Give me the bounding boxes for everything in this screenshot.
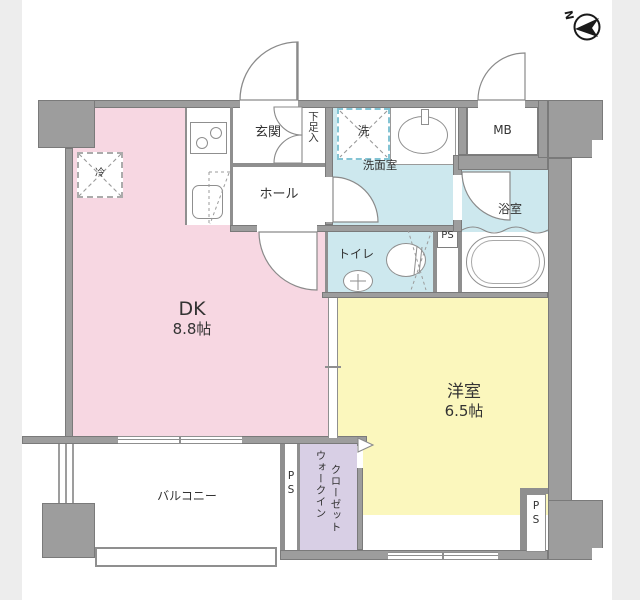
bath-wave-line xyxy=(462,227,548,233)
western-room-size: 6.5帖 xyxy=(404,403,524,420)
fridge-label: 冷 xyxy=(77,168,123,180)
floorplan: N DK 8.8帖 洋室 6.5帖 バルコニー ウォークイン クローゼット 玄関… xyxy=(0,0,640,600)
mb-label: MB xyxy=(467,124,538,138)
toilet-door-dashed xyxy=(408,230,426,290)
washer-label: 洗 xyxy=(337,125,390,139)
mb-door-swing xyxy=(478,53,525,100)
toilet-seam xyxy=(414,246,417,275)
wic-label-line1: ウォークイン xyxy=(314,450,329,548)
shoe-box-label: 下足入 xyxy=(306,111,321,143)
ps-balcony-label: PS xyxy=(285,470,297,498)
hall-label: ホール xyxy=(233,188,325,203)
compass-north-label: N xyxy=(560,7,575,23)
washroom-label: 洗面室 xyxy=(340,159,420,172)
washroom-door-swing xyxy=(333,177,378,222)
wic-label: ウォークイン クローゼット xyxy=(303,450,354,548)
balcony-label: バルコニー xyxy=(117,490,257,504)
entry-door-swing xyxy=(240,42,298,100)
hall-dk-door-swing xyxy=(259,232,317,290)
genkan-label: 玄関 xyxy=(238,126,298,141)
toilet-door-dashed xyxy=(411,230,432,290)
dk-room-label: DK xyxy=(132,299,252,321)
kitchen-dashed-line xyxy=(210,173,229,224)
bath-label: 浴室 xyxy=(482,203,538,217)
wic-label-line2: クローゼット xyxy=(329,464,344,548)
dk-room-size: 8.8帖 xyxy=(132,321,252,338)
ps-toilet-label: PS xyxy=(437,230,458,242)
toilet-label: トイレ xyxy=(332,248,380,262)
ps-corner-label: PS xyxy=(530,500,542,528)
western-room-label: 洋室 xyxy=(404,383,524,403)
wic-entry-arrow xyxy=(358,438,373,452)
